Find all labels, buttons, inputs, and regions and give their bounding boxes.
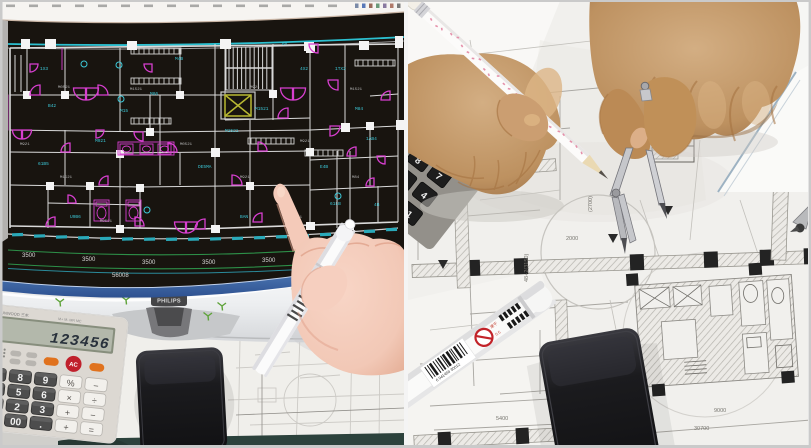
svg-text:B42: B42 — [48, 103, 56, 109]
svg-text:U9B6: U9B6 — [70, 214, 81, 220]
svg-text:M4B: M4B — [175, 56, 183, 62]
svg-text:+: + — [63, 422, 69, 432]
svg-text:E4B: E4B — [320, 164, 328, 170]
svg-text:3500: 3500 — [262, 258, 276, 264]
svg-text:48+2(3150): 48+2(3150) — [524, 254, 530, 282]
svg-text:M1521: M1521 — [60, 176, 73, 180]
svg-text:%: % — [66, 378, 75, 389]
svg-text:DE5MA: DE5MA — [198, 164, 212, 170]
svg-text:5400: 5400 — [496, 416, 508, 422]
svg-text:−: − — [93, 381, 99, 391]
svg-text:−: − — [90, 410, 96, 420]
svg-text:M1521: M1521 — [225, 128, 239, 134]
svg-text:1AB4: 1AB4 — [366, 136, 377, 142]
svg-text:M15: M15 — [120, 108, 128, 114]
svg-text:M0521: M0521 — [180, 143, 193, 147]
svg-text:PHILIPS: PHILIPS — [157, 299, 181, 305]
svg-text:1X3: 1X3 — [40, 66, 48, 72]
svg-text:3500: 3500 — [142, 260, 156, 266]
svg-text:3500: 3500 — [202, 260, 216, 266]
svg-text:=: = — [88, 425, 94, 435]
svg-text:×: × — [66, 393, 72, 403]
svg-text:M921: M921 — [95, 138, 106, 144]
svg-text:M921: M921 — [240, 176, 250, 180]
svg-text:00: 00 — [9, 416, 22, 428]
svg-text:61B5: 61B5 — [38, 161, 49, 167]
svg-text:M84: M84 — [352, 176, 360, 180]
svg-text:M921: M921 — [250, 86, 260, 90]
svg-text:M0521: M0521 — [100, 220, 113, 224]
svg-text:9000: 9000 — [714, 408, 726, 414]
svg-text:M921: M921 — [20, 143, 30, 147]
svg-text:2000: 2000 — [566, 236, 578, 242]
svg-text:61LB: 61LB — [330, 201, 341, 207]
svg-text:56008: 56008 — [112, 273, 129, 279]
svg-text:(2700): (2700) — [588, 196, 594, 212]
svg-text:M0521: M0521 — [58, 86, 71, 90]
svg-text:BAN: BAN — [240, 214, 248, 220]
svg-text:30700: 30700 — [694, 426, 709, 432]
svg-text:M1521: M1521 — [130, 88, 143, 92]
svg-text:M84: M84 — [355, 106, 363, 112]
svg-text:M1521: M1521 — [255, 106, 269, 112]
svg-text:+: + — [64, 407, 70, 417]
svg-text:M1521: M1521 — [350, 88, 363, 92]
svg-text:BA: BA — [282, 41, 288, 47]
svg-text:4B: 4B — [374, 202, 380, 208]
svg-text:M921: M921 — [300, 140, 310, 144]
svg-text:AC: AC — [69, 362, 79, 369]
svg-text:4X2: 4X2 — [300, 66, 308, 72]
svg-text:3500: 3500 — [22, 253, 36, 259]
svg-text:3500: 3500 — [82, 257, 96, 263]
svg-text:1TX2: 1TX2 — [335, 66, 346, 72]
svg-text:M86: M86 — [150, 91, 158, 97]
